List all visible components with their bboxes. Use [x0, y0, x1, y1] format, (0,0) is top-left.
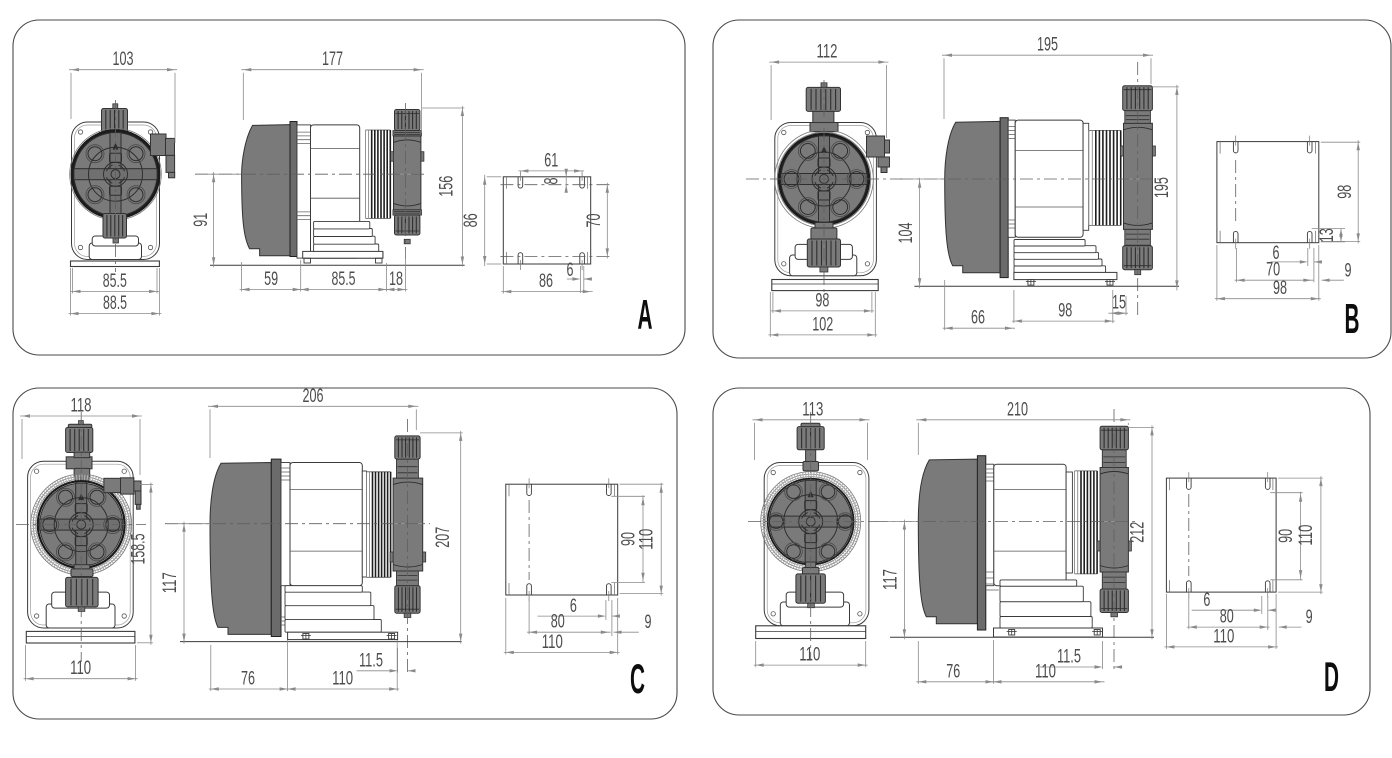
svg-text:110: 110	[1035, 660, 1056, 682]
svg-text:80: 80	[1220, 606, 1234, 628]
svg-text:102: 102	[812, 313, 833, 335]
svg-text:88.5: 88.5	[103, 292, 127, 314]
svg-text:66: 66	[971, 307, 985, 329]
svg-text:103: 103	[113, 48, 134, 70]
svg-text:80: 80	[551, 611, 565, 633]
svg-text:118: 118	[71, 395, 92, 417]
svg-text:90: 90	[1275, 529, 1297, 543]
svg-text:85.5: 85.5	[103, 270, 127, 292]
svg-text:6: 6	[567, 259, 574, 281]
svg-text:61: 61	[544, 149, 558, 171]
svg-text:98: 98	[815, 289, 829, 311]
svg-text:15: 15	[1112, 292, 1126, 314]
svg-text:206: 206	[303, 385, 324, 407]
svg-text:110: 110	[1295, 524, 1317, 545]
svg-text:91: 91	[190, 213, 212, 227]
svg-text:86: 86	[539, 270, 553, 292]
svg-text:C: C	[630, 655, 645, 702]
svg-text:113: 113	[802, 398, 823, 420]
svg-text:13: 13	[1316, 228, 1338, 242]
svg-text:9: 9	[645, 611, 652, 633]
svg-text:76: 76	[946, 660, 960, 682]
svg-text:195: 195	[1151, 177, 1173, 198]
svg-text:158.5: 158.5	[128, 533, 150, 564]
svg-text:98: 98	[1273, 277, 1287, 299]
svg-text:177: 177	[322, 48, 343, 70]
svg-text:59: 59	[264, 268, 278, 290]
svg-text:6: 6	[570, 595, 577, 617]
svg-text:85.5: 85.5	[332, 268, 356, 290]
svg-text:110: 110	[332, 668, 353, 690]
svg-text:195: 195	[1037, 34, 1058, 56]
svg-text:104: 104	[895, 222, 917, 243]
svg-text:11.5: 11.5	[1057, 646, 1081, 668]
svg-text:112: 112	[817, 41, 838, 63]
svg-text:B: B	[1345, 295, 1360, 342]
svg-text:11.5: 11.5	[359, 649, 383, 671]
svg-text:110: 110	[1213, 625, 1234, 647]
svg-text:76: 76	[241, 668, 255, 690]
svg-text:110: 110	[70, 657, 91, 679]
svg-text:6: 6	[1203, 589, 1210, 611]
svg-text:86: 86	[460, 213, 482, 227]
svg-text:210: 210	[1007, 398, 1028, 420]
svg-text:A: A	[638, 291, 653, 338]
svg-text:110: 110	[799, 644, 820, 666]
svg-text:117: 117	[159, 572, 181, 593]
svg-text:98: 98	[1058, 300, 1072, 322]
svg-text:117: 117	[880, 569, 902, 590]
svg-text:8: 8	[541, 178, 563, 185]
svg-text:212: 212	[1127, 522, 1149, 543]
svg-text:18: 18	[389, 268, 403, 290]
svg-text:D: D	[1324, 653, 1339, 700]
svg-text:110: 110	[636, 529, 658, 550]
svg-text:9: 9	[1306, 606, 1313, 628]
svg-text:207: 207	[432, 527, 454, 548]
svg-text:9: 9	[1345, 260, 1352, 282]
svg-text:110: 110	[542, 631, 563, 653]
svg-text:98: 98	[1334, 185, 1356, 199]
svg-text:156: 156	[436, 176, 458, 197]
svg-text:70: 70	[583, 213, 605, 227]
